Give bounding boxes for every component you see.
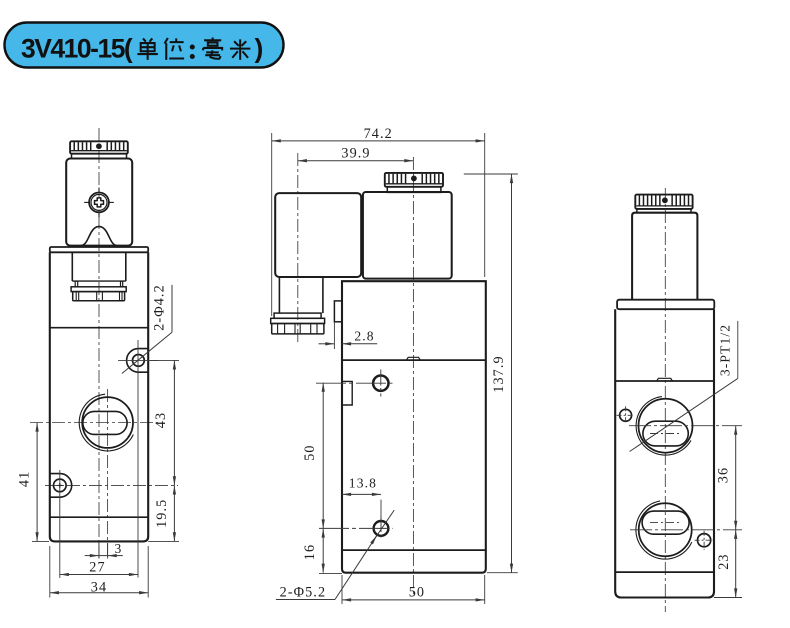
svg-text:3V410-15(: 3V410-15( xyxy=(21,34,133,64)
svg-text:39.9: 39.9 xyxy=(341,146,370,162)
svg-text:74.2: 74.2 xyxy=(364,126,393,142)
svg-text:2.8: 2.8 xyxy=(354,329,374,344)
svg-text:50: 50 xyxy=(409,584,425,600)
svg-text:13.8: 13.8 xyxy=(349,476,377,491)
svg-text:3-PT1/2: 3-PT1/2 xyxy=(717,324,732,376)
svg-text:36: 36 xyxy=(715,467,731,483)
svg-text:): ) xyxy=(255,34,264,64)
svg-text:19.5: 19.5 xyxy=(154,499,170,528)
svg-text:34: 34 xyxy=(91,579,107,595)
svg-text:43: 43 xyxy=(153,412,169,428)
svg-text:50: 50 xyxy=(302,444,318,460)
svg-text:27: 27 xyxy=(89,560,105,576)
svg-text:23: 23 xyxy=(716,553,732,569)
svg-text:2-Φ5.2: 2-Φ5.2 xyxy=(280,585,327,601)
svg-text:41: 41 xyxy=(17,471,33,487)
svg-text:137.9: 137.9 xyxy=(491,355,507,392)
svg-text:3: 3 xyxy=(114,541,122,556)
svg-text:16: 16 xyxy=(302,544,318,560)
svg-text:2-Φ4.2: 2-Φ4.2 xyxy=(152,284,168,331)
